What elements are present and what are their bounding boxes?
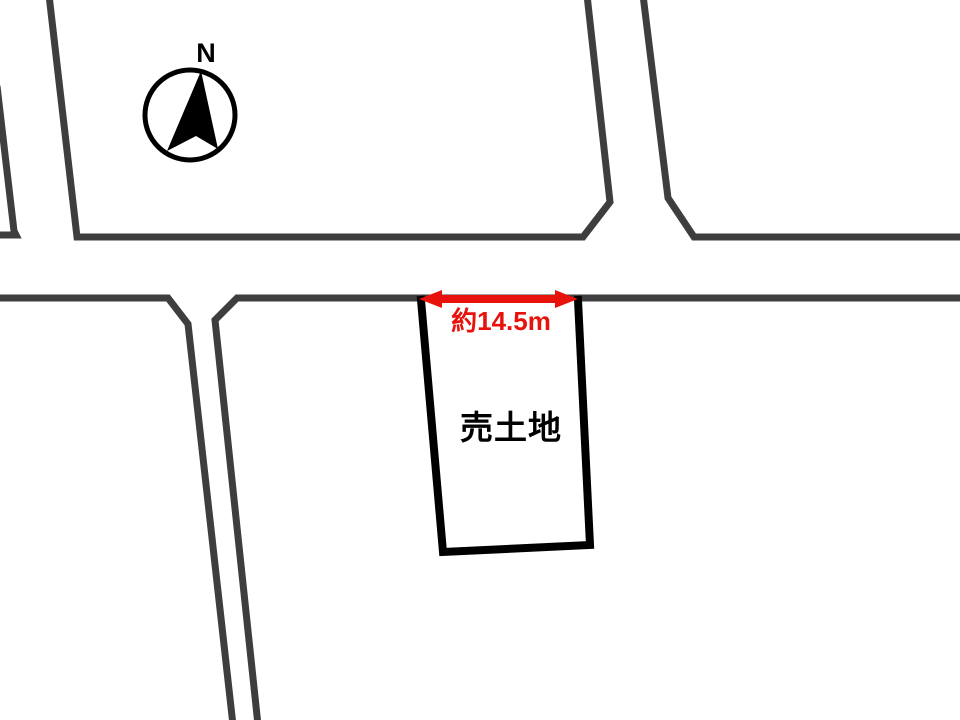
site-map: 売土地 約14.5m N [0,0,960,720]
road-edge-lower-left-block [0,298,233,720]
road-edge-left-sliver-block [0,86,16,235]
compass-north-label: N [196,38,216,68]
land-plot-label: 売土地 [460,409,562,446]
road-edge-top-left-block [49,0,610,237]
land-plot: 売土地 [421,300,590,552]
compass: N [145,38,235,160]
site-map-canvas: 売土地 約14.5m N [0,0,960,720]
dimension-label: 約14.5m [451,306,551,336]
road-edge-top-right-block [643,0,960,237]
compass-needle-icon [167,71,218,151]
